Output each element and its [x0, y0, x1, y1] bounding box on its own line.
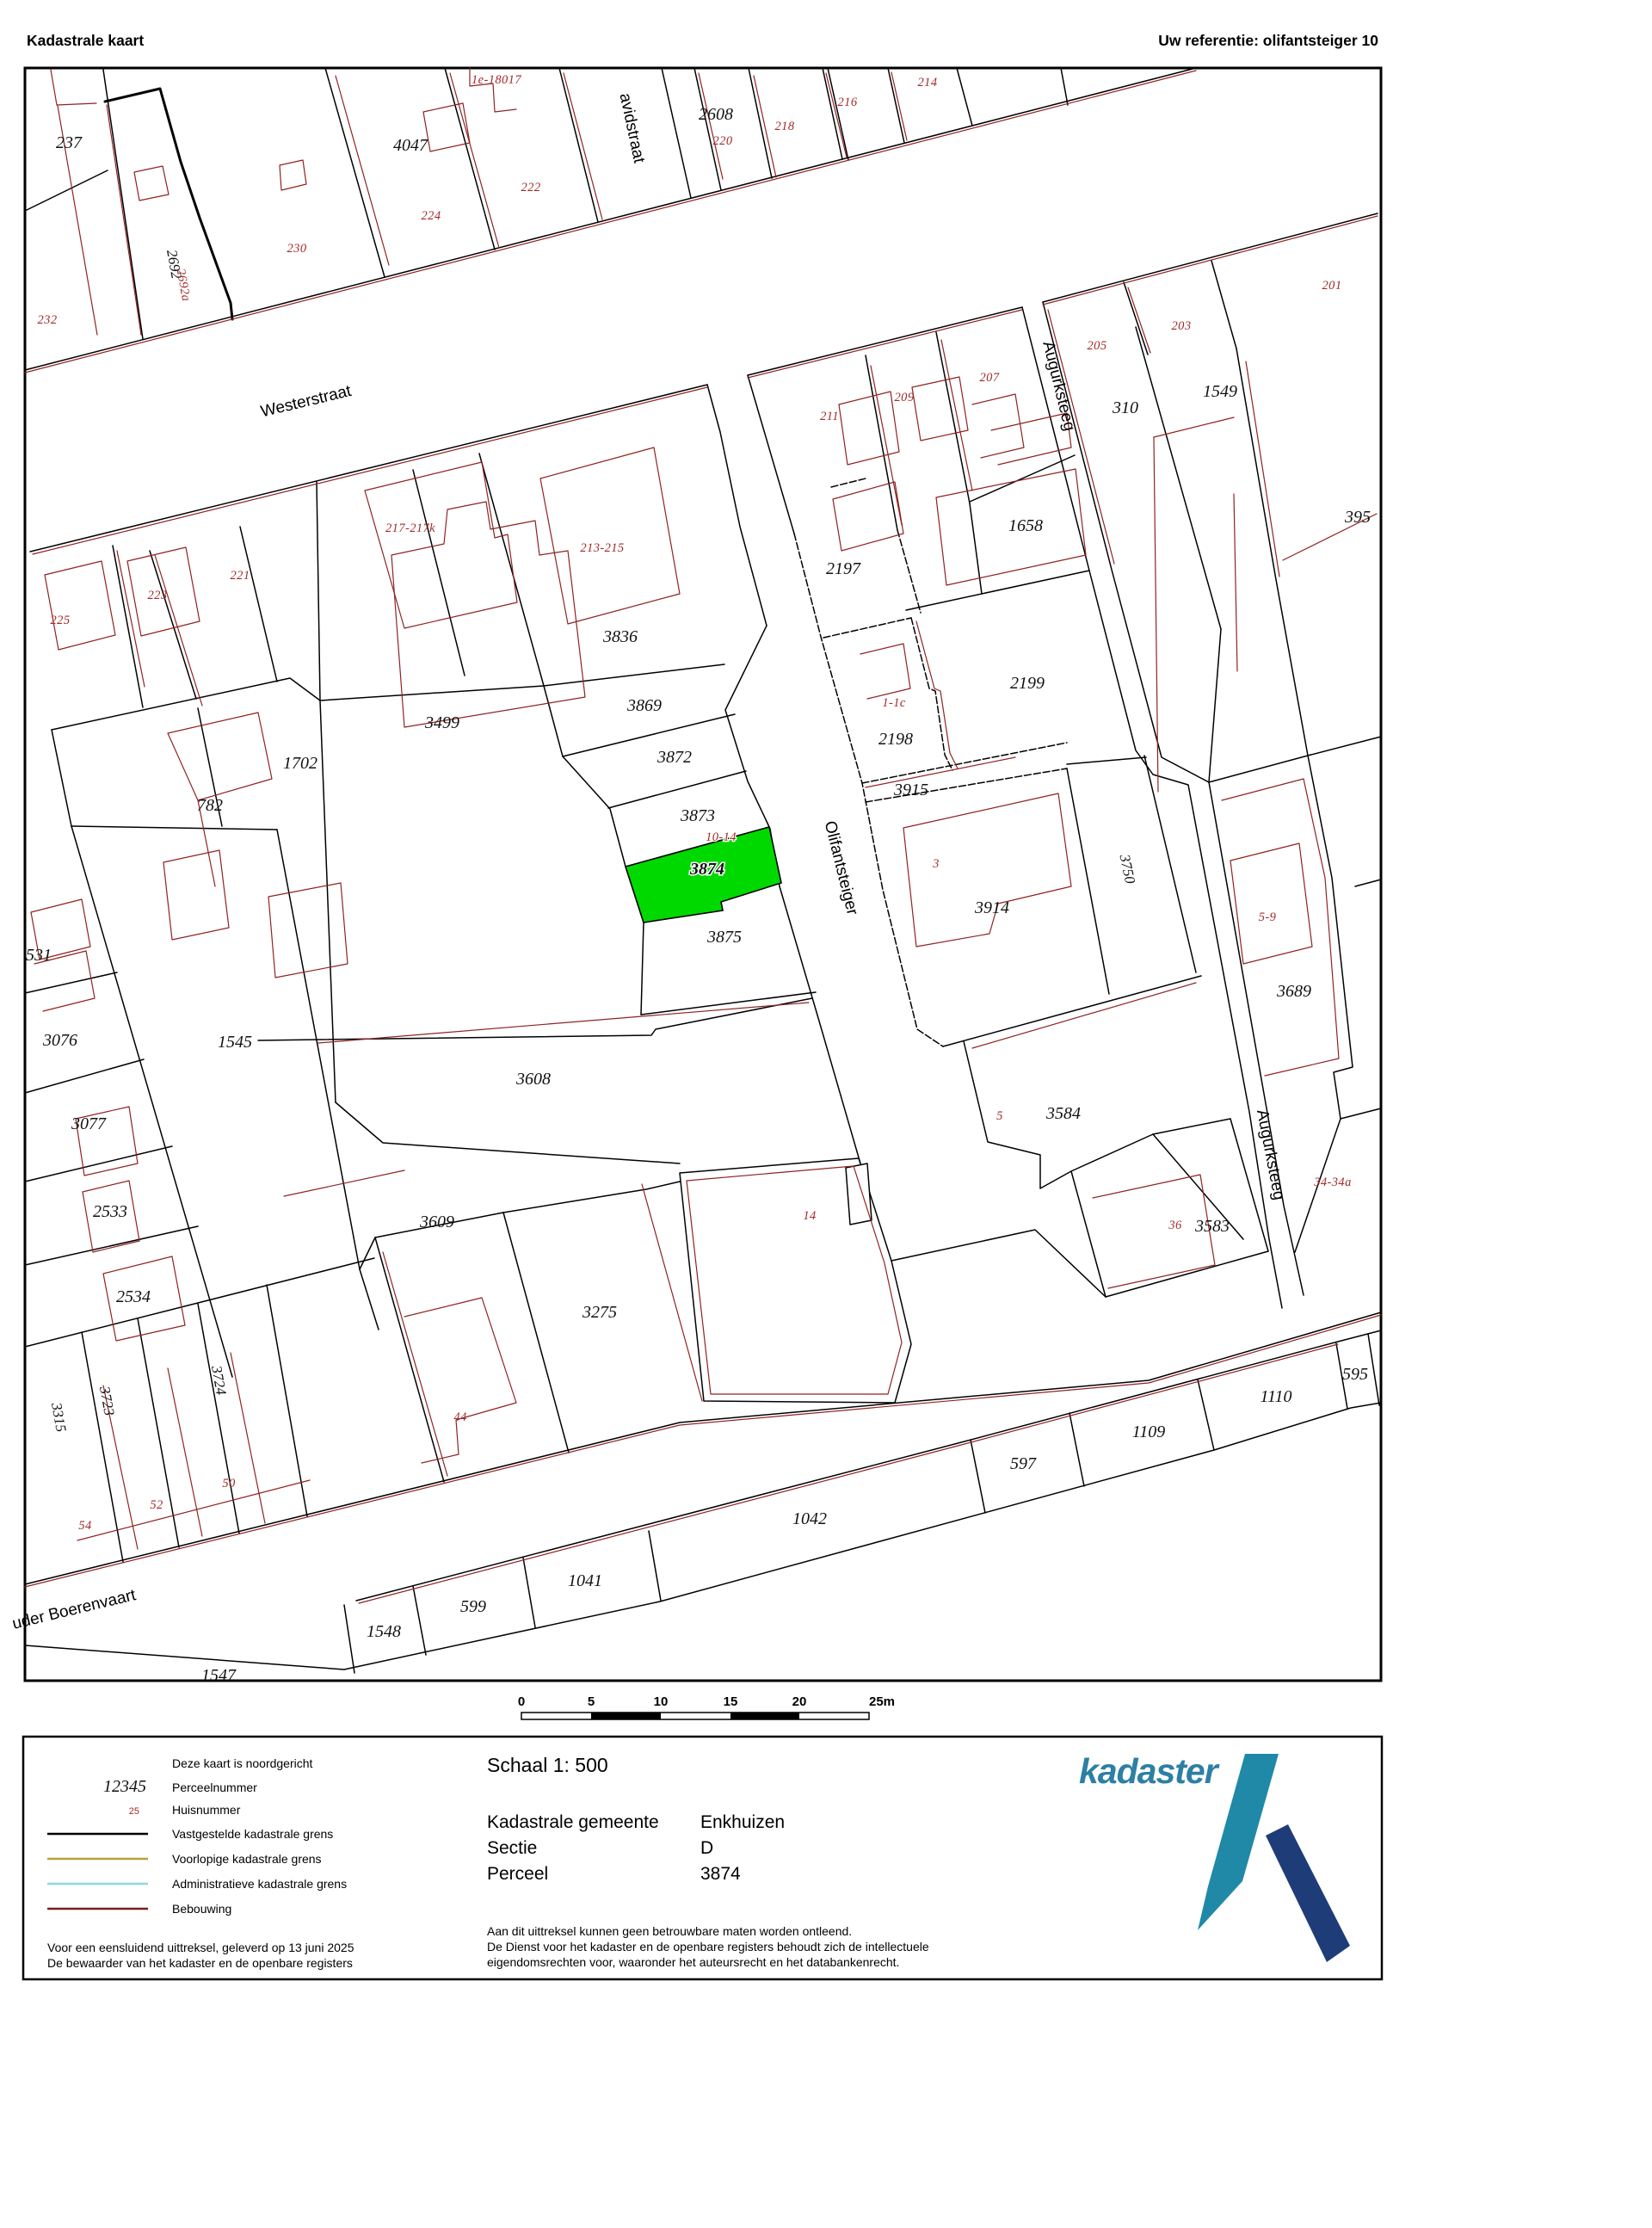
svg-text:1042: 1042 [792, 1509, 827, 1528]
svg-text:224: 224 [422, 209, 441, 223]
svg-text:25m: 25m [869, 1694, 895, 1709]
svg-text:14: 14 [803, 1209, 816, 1223]
svg-text:3836: 3836 [602, 627, 638, 646]
svg-text:54: 54 [78, 1519, 91, 1533]
svg-text:1549: 1549 [1203, 382, 1237, 401]
svg-text:782: 782 [197, 796, 223, 815]
svg-text:217-217k: 217-217k [385, 522, 435, 535]
svg-text:Westerstraat: Westerstraat [259, 382, 354, 422]
svg-text:201: 201 [1322, 279, 1342, 293]
svg-text:595: 595 [1342, 1365, 1368, 1384]
svg-text:Voorlopige kadastrale grens: Voorlopige kadastrale grens [172, 1852, 322, 1866]
svg-text:Bebouwing: Bebouwing [172, 1902, 231, 1916]
svg-text:1702: 1702 [283, 754, 317, 773]
svg-text:1547: 1547 [201, 1666, 237, 1685]
svg-text:Olifantsteiger: Olifantsteiger [821, 819, 862, 917]
svg-text:213-215: 213-215 [580, 541, 624, 555]
svg-text:220: 220 [713, 134, 733, 148]
svg-text:2197: 2197 [826, 559, 861, 578]
svg-text:Vastgestelde kadastrale grens: Vastgestelde kadastrale grens [172, 1827, 333, 1841]
svg-text:Augurksteeg: Augurksteeg [1253, 1108, 1288, 1202]
svg-text:3915: 3915 [893, 781, 928, 799]
svg-text:3499: 3499 [424, 713, 459, 732]
svg-text:3583: 3583 [1194, 1217, 1230, 1236]
svg-text:Kadastrale gemeente: Kadastrale gemeente [487, 1812, 659, 1832]
svg-text:3275: 3275 [582, 1303, 617, 1322]
svg-text:232: 232 [38, 313, 58, 327]
svg-text:2692a: 2692a [174, 268, 193, 302]
svg-text:25: 25 [129, 1806, 139, 1817]
svg-text:3875: 3875 [706, 928, 742, 947]
svg-text:Administratieve kadastrale gre: Administratieve kadastrale grens [172, 1877, 347, 1891]
svg-text:0: 0 [518, 1694, 525, 1709]
svg-text:Voor een eensluidend uittrekse: Voor een eensluidend uittreksel, gelever… [47, 1941, 354, 1954]
svg-text:36: 36 [1168, 1219, 1182, 1232]
svg-text:Sectie: Sectie [487, 1838, 537, 1858]
svg-text:10-14: 10-14 [706, 830, 737, 844]
svg-text:222: 222 [521, 181, 541, 194]
svg-text:599: 599 [460, 1597, 486, 1616]
svg-text:2533: 2533 [93, 1202, 127, 1221]
svg-text:2198: 2198 [878, 730, 913, 749]
svg-text:1110: 1110 [1260, 1387, 1291, 1406]
svg-text:3914: 3914 [974, 898, 1009, 917]
svg-text:3077: 3077 [71, 1114, 107, 1133]
svg-text:214: 214 [918, 76, 938, 89]
svg-text:1548: 1548 [367, 1622, 401, 1641]
svg-text:597: 597 [1010, 1454, 1037, 1473]
svg-text:12345: 12345 [103, 1777, 146, 1796]
svg-text:52: 52 [150, 1498, 163, 1512]
svg-text:2199: 2199 [1010, 674, 1045, 693]
svg-text:203: 203 [1172, 319, 1192, 333]
svg-text:eigendomsrechten voor, waarond: eigendomsrechten voor, waaronder het aut… [487, 1955, 899, 1969]
svg-text:3: 3 [932, 857, 940, 871]
svg-text:Perceel: Perceel [487, 1864, 548, 1884]
svg-text:531: 531 [26, 946, 52, 965]
svg-text:3873: 3873 [680, 806, 715, 825]
svg-text:310: 310 [1112, 398, 1138, 417]
svg-text:Enkhuizen: Enkhuizen [700, 1812, 785, 1832]
svg-text:3874: 3874 [700, 1864, 741, 1884]
svg-text:Huisnummer: Huisnummer [172, 1803, 241, 1817]
svg-text:3869: 3869 [626, 696, 662, 715]
svg-text:De Dienst voor het kadaster en: De Dienst voor het kadaster en de openba… [487, 1940, 929, 1953]
svg-text:D: D [700, 1838, 713, 1858]
svg-text:237: 237 [56, 133, 83, 152]
svg-text:kadaster: kadaster [1079, 1751, 1220, 1791]
svg-text:211: 211 [820, 410, 839, 423]
svg-text:3315: 3315 [48, 1401, 70, 1434]
svg-text:3689: 3689 [1276, 982, 1311, 1001]
svg-text:3872: 3872 [656, 748, 692, 767]
svg-text:218: 218 [775, 120, 795, 133]
svg-text:20: 20 [792, 1694, 807, 1709]
svg-text:1658: 1658 [1008, 516, 1043, 535]
svg-text:Perceelnummer: Perceelnummer [172, 1781, 257, 1794]
svg-text:5: 5 [588, 1694, 595, 1709]
svg-text:10: 10 [654, 1694, 669, 1709]
svg-text:De bewaarder van het kadaster: De bewaarder van het kadaster en de open… [47, 1956, 353, 1970]
svg-text:2534: 2534 [116, 1287, 151, 1306]
svg-text:avidstraat: avidstraat [616, 91, 649, 165]
svg-text:209: 209 [895, 391, 915, 404]
svg-text:395: 395 [1344, 508, 1371, 527]
svg-text:3723: 3723 [96, 1385, 118, 1417]
svg-text:221: 221 [231, 569, 250, 583]
svg-text:3750: 3750 [1116, 852, 1138, 886]
svg-text:3874: 3874 [689, 860, 724, 879]
svg-text:207: 207 [980, 371, 1000, 385]
svg-text:1e-18017: 1e-18017 [472, 73, 521, 87]
svg-text:1545: 1545 [218, 1033, 252, 1052]
svg-text:1-1c: 1-1c [882, 696, 906, 710]
svg-text:Augurksteeg: Augurksteeg [1039, 339, 1078, 433]
svg-text:50: 50 [222, 1477, 236, 1490]
svg-text:216: 216 [838, 96, 858, 109]
svg-text:205: 205 [1088, 339, 1107, 353]
svg-text:15: 15 [724, 1694, 738, 1709]
svg-text:3076: 3076 [42, 1031, 77, 1050]
svg-text:4047: 4047 [393, 136, 428, 155]
svg-text:Deze kaart is noordgericht: Deze kaart is noordgericht [172, 1756, 313, 1770]
svg-text:225: 225 [51, 614, 71, 627]
svg-text:34-34a: 34-34a [1313, 1176, 1351, 1189]
svg-text:223: 223 [148, 589, 168, 602]
svg-text:44: 44 [453, 1410, 466, 1424]
svg-text:5: 5 [996, 1109, 1003, 1123]
svg-text:1041: 1041 [568, 1571, 602, 1590]
svg-text:1109: 1109 [1132, 1423, 1166, 1441]
svg-text:3609: 3609 [419, 1213, 454, 1231]
svg-text:3608: 3608 [515, 1070, 551, 1089]
svg-text:Schaal 1: 500: Schaal 1: 500 [487, 1754, 608, 1776]
svg-text:3724: 3724 [208, 1364, 230, 1397]
svg-text:3584: 3584 [1045, 1104, 1081, 1123]
svg-text:uder Boerenvaart: uder Boerenvaart [10, 1586, 138, 1633]
svg-text:230: 230 [287, 242, 307, 256]
svg-text:5-9: 5-9 [1259, 910, 1277, 924]
svg-text:2608: 2608 [699, 105, 733, 124]
svg-text:Aan dit uittreksel kunnen geen: Aan dit uittreksel kunnen geen betrouwba… [487, 1924, 852, 1938]
